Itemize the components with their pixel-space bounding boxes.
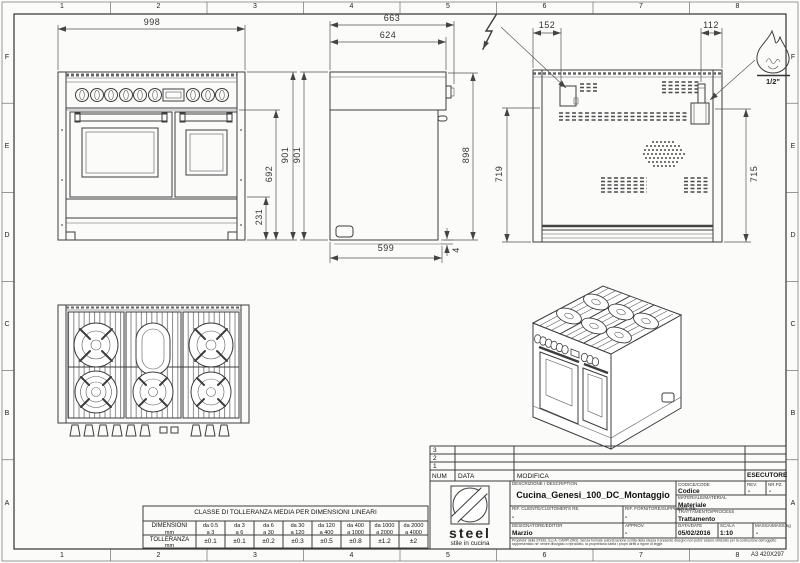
range-cell: da 1000 [370,523,399,529]
legal-notice: Proprieta' della STEEL S.p.A. CARPI (MO)… [512,539,782,550]
border-row-label: B [788,410,798,417]
border-row-label: C [2,321,12,328]
revision-row-num: 2 [433,455,437,462]
dim-side-height-back: 898 [461,140,471,170]
knob-strip [70,425,229,436]
border-col-label: 7 [631,552,651,559]
border-col-label: 2 [149,3,169,10]
tolerance-dim-unit: mm [143,530,196,536]
border-row-label: F [2,54,12,61]
dim-side-depth-total: 663 [378,13,406,23]
dim-back-elec-height: 719 [494,159,504,189]
process-value: Trattamento [678,516,715,523]
border-col-label: 5 [438,552,458,559]
process-label: TRATTAMENTO/PROCESS [678,510,734,515]
logo-tagline: stile in cucina [430,540,510,547]
border-col-label: 5 [438,3,458,10]
range-cell: a 400 [312,530,341,536]
scale-value: 1:10 [720,530,733,537]
mass-value: - [756,530,758,537]
border-col-label: 3 [245,552,265,559]
pieces-value: - [769,488,771,495]
range-cell: da 0.5 [196,523,225,529]
revision-row-num: 1 [433,463,437,470]
tolerance-value: ±0.8 [341,538,370,545]
range-cell: a 3 [196,530,225,536]
code-label: CODICE/CODE [678,483,710,488]
border-col-label: 1 [52,552,72,559]
border-row-label: D [788,232,798,239]
approval-label: APPROV. [625,524,645,529]
revision-row-num: 3 [433,447,437,454]
dim-front-height-plinth: 231 [254,202,264,232]
range-cell: da 3 [225,523,254,529]
border-col-label: 2 [149,552,169,559]
border-row-label: F [788,54,798,61]
border-row-label: B [2,410,12,417]
border-col-label: 3 [245,3,265,10]
date-header: DATA [458,473,474,480]
rev-label: REV. [747,483,757,488]
tolerance-value: ±1.2 [370,538,399,545]
flame-icon [757,31,790,76]
drawing-sheet: 1 2 3 4 5 6 7 8 1 2 3 4 5 6 7 8 F E D C … [0,0,800,563]
border-row-label: C [788,321,798,328]
tolerance-value: ±0.1 [225,538,254,545]
tolerance-tol-unit: mm [143,543,196,549]
sheet-format-label: A3 420X297 [726,552,784,558]
supplier-ref-value: - [625,514,627,521]
top-view [58,305,249,436]
dim-back-gas-height: 715 [749,159,759,189]
border-row-label: A [788,500,798,507]
gas-connection [691,84,709,124]
description-label: DESCRIZIONE / DESCRIPTION [512,482,577,487]
border-col-label: 4 [342,552,362,559]
border-col-label: 8 [728,3,748,10]
range-cell: da 400 [341,523,370,529]
range-cell: da 120 [312,523,341,529]
num-header: NUM [432,473,447,480]
mass-label: MASSA/MASS kg [755,524,791,529]
range-cell: a 1000 [341,530,370,536]
drawing-linework [0,0,800,563]
date-label: DATA/DATE [678,524,702,529]
editor-label: DESIGNATORE/EDITOR [512,524,563,529]
scale-label: SCALA [720,524,735,529]
range-cell: da 30 [283,523,312,529]
border-col-label: 1 [52,3,72,10]
dim-side-base-gap: 4 [451,242,461,258]
range-cell: a 2000 [370,530,399,536]
logo-name: steel [430,525,510,541]
range-cell: a 4000 [399,530,428,536]
gas-size-label: 1/2" [757,77,789,86]
border-col-label: 6 [535,3,555,10]
material-value: Materiale [678,502,706,509]
control-knobs-row [76,89,229,102]
tolerance-dim-label: DIMENSIONI [143,523,196,529]
border-row-label: E [788,143,798,150]
vent-slots [559,82,709,192]
tolerance-value: ±2 [399,538,428,545]
steel-logo-icon [451,486,489,524]
tolerance-value: ±0.2 [254,538,283,545]
customer-ref-value: - [512,514,514,521]
range-cell: a 120 [283,530,312,536]
approval-value: - [625,530,627,537]
border-row-label: D [2,232,12,239]
isometric-view [533,286,681,449]
pieces-label: NR.PZ. [768,483,783,488]
dim-back-elec-offset: 152 [533,20,561,30]
tolerance-value: ±0.5 [312,538,341,545]
range-cell: da 2000 [399,523,428,529]
customer-ref-label: RIF. CLIENTE/CUSTOMER'S RE. [512,507,580,512]
date-value: 05/02/2016 [678,530,711,537]
tolerance-value: ±0.1 [196,538,225,545]
side-view [300,21,478,263]
dim-side-height-total: 901 [292,140,302,170]
lightning-icon [483,15,496,49]
executor-header: ESECUTORE [747,472,787,479]
range-cell: da 6 [254,523,283,529]
border-col-label: 6 [535,552,555,559]
electrical-connection [560,86,578,106]
change-header: MODIFICA [517,473,549,480]
rev-value: - [748,488,750,495]
border-row-label: A [2,500,12,507]
code-value: Codice [678,488,700,495]
tolerance-value: ±0.3 [283,538,312,545]
editor-value: Marzio [512,530,533,537]
dim-front-height-oven: 692 [264,159,274,189]
border-col-label: 4 [342,3,362,10]
range-cell: a 6 [225,530,254,536]
dim-side-depth-top: 624 [374,30,402,40]
back-view [501,27,755,242]
border-row-label: E [2,143,12,150]
range-cell: a 30 [254,530,283,536]
border-col-label: 7 [631,3,651,10]
material-label: MATERIALE/MATERIAL [678,496,727,501]
dim-front-width: 998 [138,17,166,27]
dim-front-height-total: 901 [280,140,290,170]
tolerance-table-title: CLASSE DI TOLLERANZA MEDIA PER DIMENSION… [145,509,426,516]
dim-side-depth-base: 599 [372,243,400,253]
dim-back-gas-offset: 112 [697,20,725,30]
drawing-title: Cucina_Genesi_100_DC_Montaggio [510,490,676,500]
